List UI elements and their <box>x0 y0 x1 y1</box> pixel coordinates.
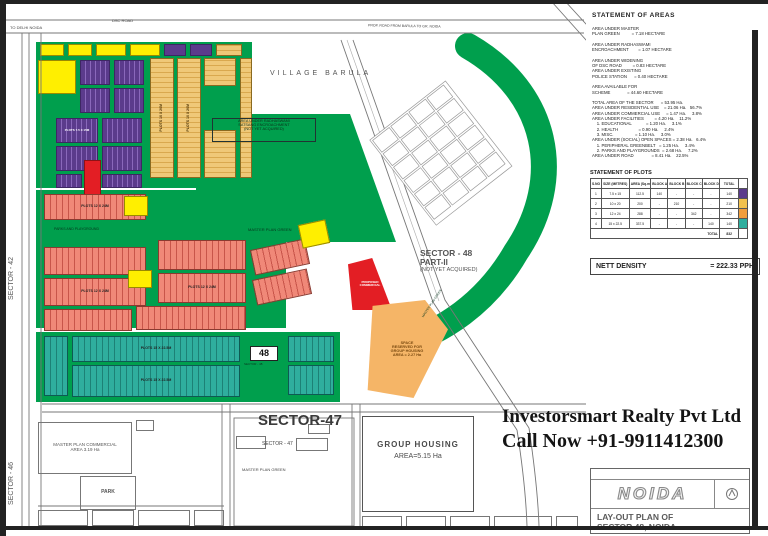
group-housing-line1: GROUP HOUSING <box>366 440 470 449</box>
cell: - <box>651 199 668 209</box>
plot-block: PLOTS 15 X 22.5M <box>72 365 240 397</box>
row-color-swatch <box>739 209 748 219</box>
plot-block <box>80 60 110 85</box>
table-row: 415 x 22.5337.5---140140 <box>591 219 748 229</box>
plot-label: PLOTS 10 X 20M <box>160 104 164 132</box>
watermark-line1: Investorsmart Realty Pvt Ltd <box>502 406 741 428</box>
emblem-box <box>714 480 749 508</box>
small-plot-box <box>138 510 190 526</box>
plot-block <box>204 58 236 86</box>
nett-density-value: = 222.33 PPH <box>710 263 754 270</box>
cell: 210 <box>720 199 739 209</box>
col-size: SIZE (METRES) <box>601 179 629 189</box>
plot-label: PLOTS 12 X 24M <box>81 205 109 209</box>
master-plan-commercial-box: MASTER PLAN COMMERCIALAREA 3.19 Ha <box>38 422 132 474</box>
plots-table: S.NO SIZE (METRES) AREA (Sq.m) BLOCK A B… <box>590 178 748 239</box>
cell: 140 <box>702 219 719 229</box>
cell: 210 <box>668 199 685 209</box>
statement-line: AREA UNDER ROAD = 8.41 Ha. 22.5% <box>592 153 752 158</box>
row-color-swatch <box>739 189 748 199</box>
col-sno: S.NO <box>591 179 602 189</box>
cell: 7.5 x 15 <box>601 189 629 199</box>
plot-block: PLOTS 10 X 20M <box>150 58 174 178</box>
statement-of-areas-list: AREA UNDER MASTER PLAN GREEN = 7.18 HECT… <box>592 26 752 158</box>
row-color-swatch <box>739 199 748 209</box>
barula-road-label: PROP. ROAD FROM BARULA TO GR. NOIDA <box>368 23 441 28</box>
watermark: Investorsmart Realty Pvt Ltd Call Now +9… <box>502 406 741 453</box>
cell: - <box>702 189 719 199</box>
col-total: TOTAL <box>720 179 739 189</box>
to-delhi-label: TO DELHI NOIDA <box>10 26 42 31</box>
cell: - <box>668 219 685 229</box>
cell: 15 x 22.5 <box>601 219 629 229</box>
plot-block: PLOTS 7.5 X 15M <box>56 118 98 143</box>
plot-block: PLOTS 15 X 22.5M <box>72 336 240 362</box>
plot-block <box>298 219 330 248</box>
watermark-line2: Call Now +91-9911412300 <box>502 430 741 453</box>
noida-logo: NOIDA <box>591 484 714 504</box>
table-row: 210 x 20200-210--210 <box>591 199 748 209</box>
plot-block <box>124 196 148 216</box>
plot-label: PLOTS 7.5 X 15M <box>65 129 90 132</box>
plot-block <box>288 365 334 395</box>
master-plan-green-label: MASTER PLAN GREEN <box>248 228 292 233</box>
frame-right <box>752 30 758 526</box>
title-block-top-strip <box>591 469 749 480</box>
plot-block <box>130 44 160 56</box>
col-area: AREA (Sq.m) <box>629 179 651 189</box>
cell: 342 <box>685 209 702 219</box>
plot-block <box>80 88 110 113</box>
cell: - <box>685 199 702 209</box>
plot-block <box>102 146 142 171</box>
sector-47-small-label: SECTOR - 47 <box>262 441 293 447</box>
cell: 140 <box>720 219 739 229</box>
sector-48-badge: 48 <box>250 346 278 361</box>
small-plot-box <box>38 510 88 526</box>
sector-48-line2: PART-II <box>420 258 550 267</box>
cell: - <box>668 209 685 219</box>
frame-top <box>0 0 768 4</box>
layout-title-line1: LAY-OUT PLAN OF <box>597 512 749 522</box>
statement-of-areas-title: STATEMENT OF AREAS <box>592 12 675 19</box>
plot-block <box>216 44 242 56</box>
plot-label: PLOTS 15 X 22.5M <box>141 379 172 383</box>
plot-block <box>40 44 64 56</box>
cell: 4 <box>591 219 602 229</box>
noida-logo-text: NOIDA <box>618 484 688 503</box>
radhaswami-note: AREA UNDER RADHASWAMI SATSANG ENCROACHME… <box>212 118 316 142</box>
cell <box>739 229 748 239</box>
cell: 337.5 <box>629 219 651 229</box>
group-housing-label: GROUP HOUSING AREA=5.15 Ha <box>366 440 470 460</box>
cell: - <box>651 209 668 219</box>
commercial-block <box>84 160 101 198</box>
plot-block <box>102 118 142 143</box>
plot-block <box>114 88 144 113</box>
group-housing-reserved-block: SPACERESERVED FOR GROUP HOUSINGAREA = 2.… <box>366 300 448 398</box>
row-color-swatch <box>739 219 748 229</box>
cell: 288 <box>629 209 651 219</box>
cell: 2 <box>591 199 602 209</box>
table-row: 17.5 x 15112.5140---140 <box>591 189 748 199</box>
cell: - <box>651 219 668 229</box>
cell: 140 <box>720 189 739 199</box>
plot-block <box>288 336 334 362</box>
emblem-icon <box>725 487 739 501</box>
cell: - <box>685 219 702 229</box>
village-barula-label: VILLAGE BARULA <box>270 70 371 78</box>
plot-label: PLOTS 12 X 24M <box>81 290 109 294</box>
commercial-block: PROPOSEDCOMMERCIAL <box>348 258 392 310</box>
statement-of-plots-title: STATEMENT OF PLOTS <box>590 170 750 176</box>
plot-block: PLOTS 12 X 24M <box>158 273 246 303</box>
col-swatch <box>739 179 748 189</box>
cell: 3 <box>591 209 602 219</box>
park-label: PARK <box>101 490 115 496</box>
statement-of-plots: STATEMENT OF PLOTS S.NO SIZE (METRES) AR… <box>590 170 750 239</box>
sector-47-big-label: SECTOR-47 <box>258 412 342 430</box>
plot-block <box>56 174 82 188</box>
cell: - <box>668 189 685 199</box>
plot-block <box>102 174 142 188</box>
small-plot-box <box>136 420 154 431</box>
nett-density-box: NETT DENSITY = 222.33 PPH <box>590 258 760 275</box>
plot-label: PLOTS 10 X 20M <box>187 104 191 132</box>
plots-table-header-row: S.NO SIZE (METRES) AREA (Sq.m) BLOCK A B… <box>591 179 748 189</box>
title-block: NOIDA LAY-OUT PLAN OF SECTOR 48, NOIDA <box>590 468 750 534</box>
badge-48-sub-label: SECTOR - 48 <box>244 363 262 367</box>
sector-46-label: SECTOR - 46 <box>8 462 16 505</box>
plot-block <box>44 309 132 331</box>
cell: 1 <box>591 189 602 199</box>
cell: 200 <box>629 199 651 209</box>
group-housing-box <box>362 416 474 512</box>
plot-block <box>158 240 246 270</box>
plot-block <box>38 60 76 94</box>
plot-label: PLOTS 12 X 24M <box>188 286 216 290</box>
cell: 10 x 20 <box>601 199 629 209</box>
plot-block <box>164 44 186 56</box>
group-housing-reserved-label: SPACERESERVED FOR GROUP HOUSINGAREA = 2.… <box>391 341 424 358</box>
col-block-c: BLOCK C <box>685 179 702 189</box>
badge-48-number: 48 <box>259 349 269 359</box>
cell: 342 <box>720 209 739 219</box>
plot-block <box>96 44 126 56</box>
plot-label: PLOTS 15 X 22.5M <box>141 347 172 351</box>
park-box: PARK <box>80 476 136 510</box>
table-total-row: TOTAL 832 <box>591 229 748 239</box>
plot-block <box>128 270 152 288</box>
commercial-label: PROPOSEDCOMMERCIAL <box>360 281 381 288</box>
master-plan-commercial-label: MASTER PLAN COMMERCIALAREA 3.19 Ha <box>53 443 117 453</box>
sector-47-green-label: MASTER PLAN GREEN <box>242 468 286 473</box>
logo-row: NOIDA <box>591 480 749 509</box>
plot-block <box>136 306 246 330</box>
sector-42-label: SECTOR - 42 <box>8 257 16 300</box>
nett-density-label: NETT DENSITY <box>596 263 647 270</box>
total-label: TOTAL <box>591 229 720 239</box>
sector-48-part2-label: SECTOR - 48 PART-II (NOT YET ACQUIRED) <box>420 248 550 273</box>
frame-left <box>0 0 6 536</box>
col-block-a: BLOCK A <box>651 179 668 189</box>
plot-block: PLOTS 10 X 20M <box>177 58 201 178</box>
cell: - <box>702 209 719 219</box>
plot-block <box>44 336 68 396</box>
small-plot-box <box>194 510 224 526</box>
radhaswami-line3: (NOT YET ACQUIRED) <box>213 127 315 131</box>
footer-caption: For Selling/Purchasing/Renting Of Proper… <box>0 531 768 536</box>
cell: - <box>702 199 719 209</box>
plot-block <box>190 44 212 56</box>
small-plot-box <box>92 510 134 526</box>
sector-48-line1: SECTOR - 48 <box>420 248 550 258</box>
total-value: 832 <box>720 229 739 239</box>
col-block-b: BLOCK B <box>668 179 685 189</box>
cell: 112.5 <box>629 189 651 199</box>
layout-plan-canvas: PLOTS 7.5 X 15M PLOTS 10 X 20M PLOTS 10 … <box>0 0 768 536</box>
cell: 12 x 24 <box>601 209 629 219</box>
parks-band-label: PARKS AND PLAYGROUND <box>54 227 99 231</box>
group-housing-line2: AREA=5.15 Ha <box>366 453 470 460</box>
sector-48-line3: (NOT YET ACQUIRED) <box>420 267 550 273</box>
small-plot-box <box>296 438 328 451</box>
table-row: 312 x 24288--342-342 <box>591 209 748 219</box>
frame-bottom <box>0 526 768 530</box>
cell: 140 <box>651 189 668 199</box>
cell: - <box>685 189 702 199</box>
plot-block <box>114 60 144 85</box>
col-block-d: BLOCK D <box>702 179 719 189</box>
plot-block <box>68 44 92 56</box>
dsc-road-label: DSC ROAD <box>112 19 133 24</box>
